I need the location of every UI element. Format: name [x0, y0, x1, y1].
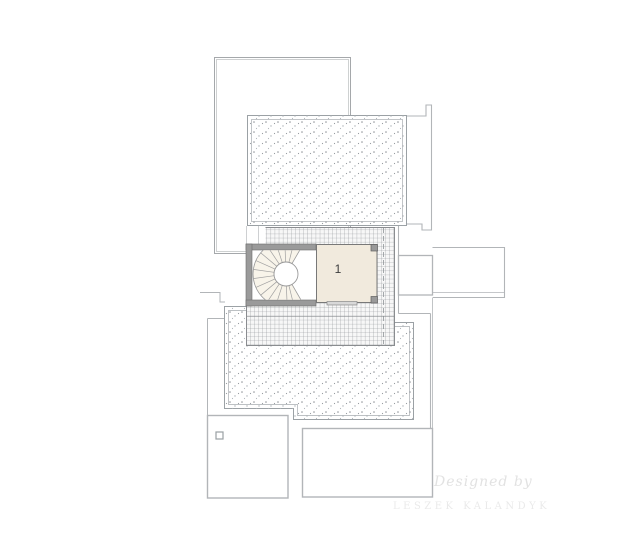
stair-center-circle — [274, 262, 298, 286]
lower-floor-outlines-right — [399, 105, 505, 429]
lower-right-footprint — [303, 429, 433, 498]
lower-left-footprint — [208, 416, 289, 499]
floor-plan-canvas: 1 Designed by LESZEK KALANDYK — [0, 0, 638, 556]
lower-floor-footprints — [208, 416, 433, 499]
floor-plan-drawing — [0, 0, 638, 556]
wall-post-bottom — [371, 297, 378, 304]
chimney-square — [216, 432, 223, 439]
wall-post-top — [371, 245, 378, 252]
room-1 — [317, 245, 378, 306]
upper-terrace-stippled — [248, 116, 407, 226]
room-number-label: 1 — [330, 262, 346, 276]
lower-floor-outlines-left — [200, 293, 225, 417]
watermark-designer-name: LESZEK KALANDYK — [393, 501, 563, 512]
grid-notch — [246, 226, 266, 244]
watermark-designed-by: Designed by — [434, 474, 544, 490]
window-sill — [327, 302, 357, 306]
